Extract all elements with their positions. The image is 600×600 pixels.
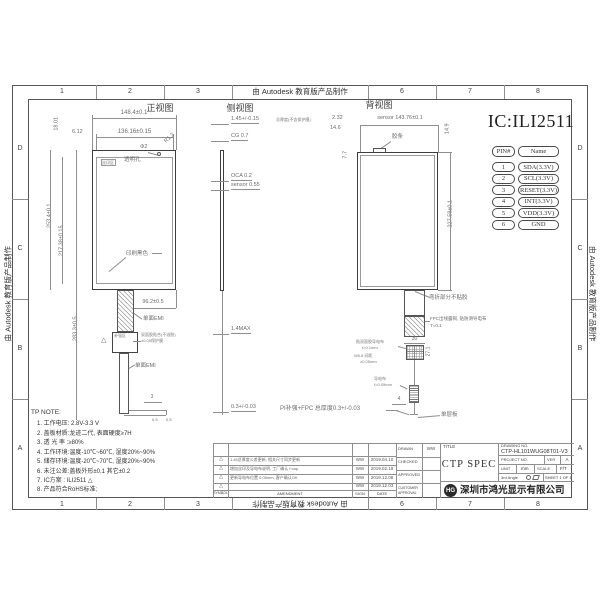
fpc-foot-line <box>124 415 166 416</box>
drawing-sheet: 1 2 3 6 7 8 由 Autodesk 教育版产品制作 1 2 3 6 7… <box>0 0 600 600</box>
col-label-top-3: 3 <box>188 88 208 95</box>
scale-label: SCALE <box>537 467 550 471</box>
hole-label: 透明孔 <box>124 158 150 164</box>
table-line <box>396 483 440 484</box>
fpc-foot-line <box>166 410 167 415</box>
table-line <box>440 443 441 498</box>
checked-label: CHECKED <box>398 460 418 464</box>
border-tick <box>504 498 505 510</box>
amendment-header-amendment: AMENDMENT <box>228 492 352 496</box>
dim-side-total: 1.45+/-0.15 <box>231 117 259 124</box>
row-label-right-a: A <box>574 445 586 452</box>
fpc-end <box>410 414 418 415</box>
dim-line <box>92 118 176 119</box>
table-line <box>396 470 440 471</box>
title-label: TITLE <box>443 445 455 450</box>
dim-foot-b: 0.5 <box>166 418 178 422</box>
cloth-note-1: 贴双面胶导电布 <box>356 340 384 344</box>
tp-note-line: 6. 未注公差:盖板外形±0.1 其它±0.2 <box>37 469 130 475</box>
leader-line <box>425 321 430 322</box>
unit-label: UNIT <box>501 467 510 471</box>
border-tick <box>572 399 588 400</box>
angle-label: 3rd Angle <box>501 476 518 480</box>
amendment-date: 2019.12.03 <box>368 484 396 489</box>
pin-cell: GND <box>518 220 559 230</box>
amendment-header-sign: SIGN <box>352 492 368 496</box>
extension-line <box>438 125 439 152</box>
customer-approval-label: CUSTOMER APPROVAL <box>398 486 424 496</box>
company-logo-text: HG <box>446 488 455 494</box>
project-no-label: PROJECT NO. <box>501 458 528 462</box>
tp-note-line: 5. 储存环境:温度-20℃~70℃, 湿度20%~90% <box>37 459 155 465</box>
border-tick <box>436 85 437 99</box>
company-name: 深圳市鸿光显示有限公司 <box>460 486 565 496</box>
amendment-header-symbol: SYMBOL <box>213 492 228 496</box>
dim-front-margin-left: 6.12 <box>72 130 94 136</box>
pin-cell: 4 <box>492 197 515 207</box>
pin-cell: 3 <box>492 185 515 195</box>
amendment-text: 增加丝印及导电布说明, 工厂确认 f cap <box>230 467 298 471</box>
pin-table-header-name: Name <box>518 146 559 157</box>
border-tick <box>12 299 28 300</box>
row-label-left-d: D <box>14 145 26 152</box>
col-label-bottom-8: 8 <box>528 501 548 508</box>
dim-side-sensor: sensor 0.55 <box>231 183 260 190</box>
pin-cell: 1 <box>492 162 515 172</box>
extension-line <box>360 125 361 152</box>
extension-line <box>438 290 452 291</box>
company-logo: HG <box>444 484 457 497</box>
dim-line <box>76 150 77 420</box>
table-line <box>516 464 517 473</box>
fpc-tail-lower <box>119 353 129 414</box>
bend-label: 弯折部分不贴胶 <box>429 296 468 302</box>
back-view-title: 背视图 <box>348 101 410 110</box>
copper-thickness: T=0.1 <box>430 324 442 329</box>
tp-note-line: 3. 透 光 率 :≥80% <box>37 440 84 446</box>
cond-cloth-thickness: t=0.05mm <box>374 383 392 387</box>
row-label-left-b: B <box>14 345 26 352</box>
dim-cloth-height: 27.1 <box>427 343 432 361</box>
side-stack-outline <box>220 150 224 291</box>
col-label-bottom-7: 7 <box>460 501 480 508</box>
table-line <box>534 464 535 473</box>
pin-cell: SDA(3.3V) <box>518 162 559 172</box>
side-view-title: 侧视图 <box>212 104 268 113</box>
dim-back-b: 14.6 <box>330 126 352 132</box>
row-label-right-c: C <box>574 245 586 252</box>
amendment-date: 2019.04.10 <box>368 458 396 463</box>
table-line <box>543 473 544 481</box>
amendment-symbol: △ <box>215 466 227 471</box>
edu-watermark-bottom: 由 Autodesk 教育版产品制作 <box>232 500 368 508</box>
border-tick <box>12 399 28 400</box>
dim-fpc-offset: 96.2±0.5 <box>128 300 178 306</box>
col-label-bottom-1: 1 <box>52 501 72 508</box>
border-tick <box>96 498 97 510</box>
amendment-sign: WW <box>352 458 368 463</box>
tp-note-line: 2. 盖板材质:龙迹二代, 表面硬度≥7H <box>37 431 132 437</box>
dim-tick <box>211 190 229 191</box>
dim-tick <box>211 181 229 182</box>
dim-hole-diameter: Φ2 <box>140 145 154 151</box>
stiffener-box-label: 补强区 <box>114 334 126 338</box>
dim-back-a: 2.32 <box>332 116 354 122</box>
back-fpc-tail <box>404 290 425 316</box>
approved-label: APPROVED <box>398 473 420 477</box>
amendment-symbol: △ <box>215 475 227 480</box>
dim-back-sensor-width: sensor 143.76±0.1 <box>362 116 438 122</box>
border-tick <box>164 85 165 99</box>
tp-note-line: 4. 工作环境:温度-10℃~60℃, 湿度20%~90% <box>37 450 155 456</box>
col-label-top-7: 7 <box>460 88 480 95</box>
front-active-area <box>96 157 173 284</box>
amendment-header-date: DATE <box>368 492 396 496</box>
edu-watermark-left: 由 Autodesk 教育版产品制作 <box>4 224 12 364</box>
table-line <box>556 464 557 473</box>
table-line <box>498 464 574 465</box>
sheet-value: SHEET 1 OF 1 <box>545 476 572 480</box>
table-line <box>560 455 561 464</box>
dim-back-d: 14.9 <box>445 119 451 139</box>
table-line <box>498 473 574 474</box>
pin-cell: RESET(3.3V) <box>518 185 559 195</box>
ic-label: IC:ILI2511 <box>486 112 576 130</box>
dim-cloth-width: 30 <box>407 337 422 342</box>
pin-cell: INT(3.3V) <box>518 197 559 207</box>
tp-note-title: TP NOTE: <box>31 410 61 417</box>
title-value: CTP SPEC <box>440 460 498 471</box>
unit-value: mm <box>521 467 529 472</box>
dim-tick <box>213 334 229 335</box>
pin-cell: 2 <box>492 174 515 184</box>
col-label-bottom-2: 2 <box>120 501 140 508</box>
dim-back-c: 7.7 <box>343 146 349 164</box>
extension-line <box>176 290 177 308</box>
dim-side-fpc-max: 1.4MAX <box>231 327 251 334</box>
dim-front-top: 18.01 <box>54 111 60 137</box>
cloth-note-4: ±0.05mm <box>360 360 377 364</box>
border-tick <box>368 85 369 99</box>
fpc-copper-area <box>404 316 425 337</box>
side-fpc-line <box>222 291 223 415</box>
back-inner-area <box>360 155 435 287</box>
dim-line <box>392 404 406 405</box>
dim-line <box>450 152 451 290</box>
row-label-right-b: B <box>574 345 586 352</box>
dim-side-oca: OCA 0.2 <box>231 174 252 181</box>
ver-label: VER <box>547 458 555 462</box>
col-label-bottom-6: 6 <box>392 501 412 508</box>
amendment-sign: WW <box>352 467 368 472</box>
copper-label: FPC出线露铜, 贴防滑导电布 <box>430 317 487 322</box>
third-angle-projection-icon <box>526 475 531 480</box>
dim-line <box>50 150 51 290</box>
conductive-cloth-area <box>406 345 424 360</box>
dim-line <box>360 125 438 126</box>
border-tick <box>164 498 165 510</box>
pin-cell: SCL(3.3V) <box>518 174 559 184</box>
amendment-text: 更新导电布位置 0.05mm, 客户确认OK <box>230 476 298 480</box>
border-tick <box>572 299 588 300</box>
drawing-no-value: CTP-HL101WUG08T01-V3 <box>501 450 568 456</box>
table-line <box>544 455 545 464</box>
fpc-line <box>414 360 415 385</box>
amendment-date: 2019.02.19 <box>368 467 396 472</box>
edu-watermark-right: 由 Autodesk 教育版产品制作 <box>588 224 596 364</box>
stiffener-note-2: ±0.05保护膜 <box>141 339 163 343</box>
scale-value: F/T <box>560 467 567 472</box>
dim-line <box>144 402 162 403</box>
pin-cell: VDD(3.3V) <box>518 208 559 218</box>
border-tick <box>572 199 588 200</box>
col-label-top-8: 8 <box>528 88 548 95</box>
dim-foot-a: 0.5 <box>152 418 164 422</box>
notch-label: 胶条 <box>392 135 414 141</box>
dim-line <box>404 343 425 344</box>
drawing-no-label: DRAWING NO. <box>501 444 528 448</box>
col-label-top-6: 6 <box>392 88 412 95</box>
dim-side-cg: CG 0.7 <box>231 134 248 141</box>
amendment-sign: WW <box>352 484 368 489</box>
fpc-foot-line <box>129 410 166 411</box>
table-line <box>396 457 440 458</box>
amendment-symbol: △ <box>215 457 227 462</box>
dim-tick <box>211 141 229 142</box>
ver-value: A <box>562 458 572 463</box>
tp-note-line: 7. IC方案 : ILI2511 △ <box>37 478 93 484</box>
stiffener-total-label: PI补强+FPC 总厚度0.3+/-0.03 <box>280 406 360 412</box>
row-label-left-a: A <box>14 445 26 452</box>
row-label-left-c: C <box>14 245 26 252</box>
dim-tick <box>213 412 229 413</box>
row-label-right-d: D <box>574 145 586 152</box>
border-tick <box>96 85 97 99</box>
dim-line <box>96 137 173 138</box>
dim-back-e: 4 <box>394 397 404 402</box>
emi-lower-label: 单面EMI <box>135 364 165 370</box>
silkscreen-box-label: 丝印区 <box>102 161 114 165</box>
col-label-bottom-3: 3 <box>188 501 208 508</box>
drawn-label: DRAWN <box>398 447 413 451</box>
pin-cell: 5 <box>492 208 515 218</box>
border-tick <box>368 498 369 510</box>
amendment-symbol: △ <box>215 484 227 489</box>
pin-table-header-pin: PIN# <box>492 146 515 157</box>
drawn-value: WW <box>423 447 439 452</box>
fpc-line <box>414 403 415 414</box>
cloth-note-3: W0.8 间距 <box>354 354 372 358</box>
col-label-top-2: 2 <box>120 88 140 95</box>
panel-mark <box>152 253 162 254</box>
border-tick <box>12 199 28 200</box>
dim-line <box>62 157 63 284</box>
border-tick <box>436 498 437 510</box>
fpc-tail-upper <box>117 290 134 332</box>
dim-front-width-inner: 136.16±0.15 <box>96 129 173 135</box>
cond-cloth-label: 导电布 <box>374 377 386 381</box>
col-label-top-1: 1 <box>52 88 72 95</box>
tp-note-line: 8. 产品符合RoHS标准; <box>37 487 97 493</box>
dim-line <box>134 308 176 309</box>
cloth-note-2: t=0.1mm <box>362 346 378 350</box>
table-line <box>440 481 574 482</box>
pin-cell: 6 <box>492 220 515 230</box>
amendment-sign: WW <box>352 476 368 481</box>
emi-upper-label: 单面EMI <box>143 317 173 323</box>
single-layer-label: 单层板 <box>441 413 458 419</box>
amendment-text: 1.45总厚度公差更新, 相关尺寸同步更新 <box>230 458 300 462</box>
amendment-date: 2019.12.08 <box>368 476 396 481</box>
dim-tick <box>211 124 229 125</box>
dim-front-width-outer: 148.4±0.1 <box>92 110 176 116</box>
table-line <box>498 443 499 481</box>
side-total-note: 总厚度(不含保护膜) <box>276 118 311 122</box>
gold-finger-area <box>409 385 419 403</box>
border-tick <box>504 85 505 99</box>
extension-line <box>438 152 452 153</box>
dim-foot: 3 <box>146 395 158 400</box>
stiffener-note-1: 双面胶贴合(不溢胶) <box>141 333 176 337</box>
revision-triangle: △ <box>101 337 111 344</box>
dim-side-fpc-thk: 0.3+/-0.03 <box>231 405 256 412</box>
edu-watermark-top: 由 Autodesk 教育版产品制作 <box>232 88 368 96</box>
tp-note-line: 1. 工作电压: 2.8V-3.3 V <box>37 421 99 427</box>
leader-line <box>133 341 141 342</box>
